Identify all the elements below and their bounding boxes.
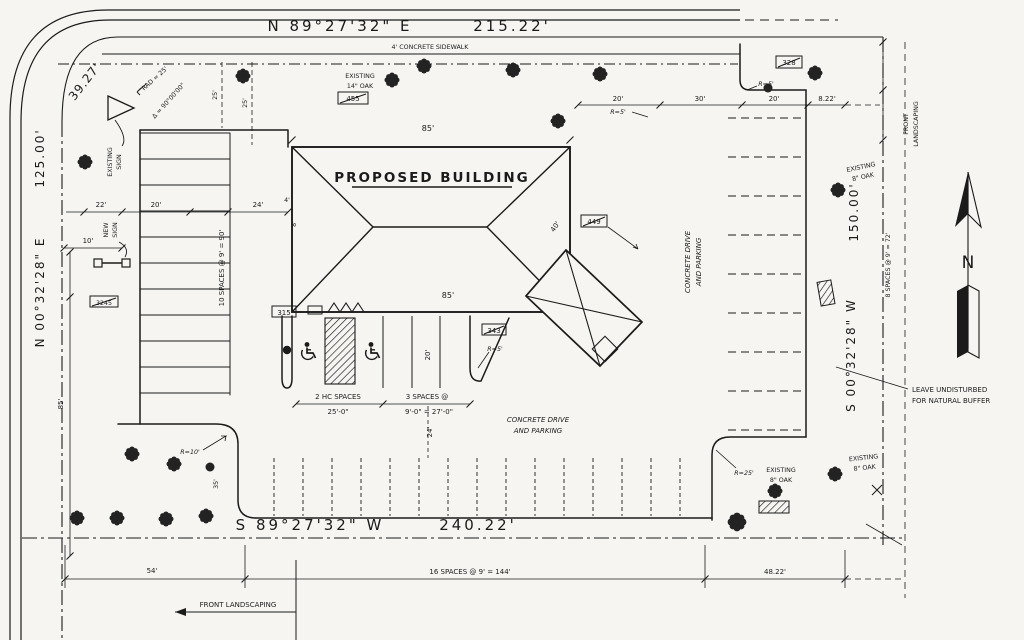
tree-icon [417, 59, 432, 74]
dim-20-stall: 20' [424, 350, 432, 361]
dim-20ne2: 20' [769, 95, 780, 103]
dim-4822: 48.22' [764, 568, 786, 576]
tree-icon [551, 114, 566, 129]
hatched-marker [817, 280, 835, 306]
east-distance-label: 150.00' [847, 182, 861, 241]
dim-24-aisle: 24' [426, 427, 434, 438]
property-boundary [22, 37, 905, 640]
tree-icon [506, 63, 521, 78]
tree-icon [167, 457, 182, 472]
parking-std-dim-label: 9'-0" = 27'-0" [405, 408, 453, 416]
dim-8: 8' [291, 221, 298, 227]
r10-leader [203, 436, 226, 450]
dim-20nw: 20' [151, 201, 162, 209]
compass-arrow-open [968, 172, 981, 227]
stall-lines-south [274, 458, 680, 516]
oak8-south2-label-1: EXISTING [849, 453, 879, 463]
survey-x-mark [872, 485, 882, 495]
site-plan-drawing: N 89°27'32" E 215.22' 4' CONCRETE SIDEWA… [0, 0, 1024, 640]
site-plan-sheet: N 89°27'32" E 215.22' 4' CONCRETE SIDEWA… [0, 0, 1024, 640]
tree-icon [236, 69, 251, 84]
tree-icon [385, 73, 400, 88]
existing-sign-label-2: SIGN [116, 154, 123, 170]
parking-east-label: 8 SPACES @ 9' = 72' [884, 232, 892, 297]
spot449-leader [608, 227, 638, 249]
tree-icon [78, 155, 93, 170]
oak8-south1-label-1: EXISTING [766, 467, 796, 474]
corner-delta-note: Δ = 90°00'00" [150, 81, 186, 120]
r5a-leader [632, 112, 648, 117]
parking-south-label: 16 SPACES @ 9' = 144' [429, 568, 510, 576]
north-distance-label: 215.22' [473, 17, 551, 35]
parking-left-label: 10 SPACES @ 9' = 90' [218, 230, 226, 307]
tree-icon [125, 447, 140, 462]
oak14-label-2: 14" OAK [347, 83, 374, 90]
compass-north-label: N [962, 253, 975, 273]
sidewalk [58, 54, 740, 64]
new-sign-label-2: SIGN [112, 222, 119, 238]
stall-lines-left [140, 133, 230, 393]
dim-22: 22' [96, 201, 107, 209]
front-landscaping-bottom-label: FRONT LANDSCAPING [200, 601, 277, 609]
dimensions [61, 39, 909, 640]
west-bearing-label: N 00°32'28" E [33, 237, 47, 348]
north-bearing-label: N 89°27'32" E [267, 17, 412, 35]
existing-sign-label-1: EXISTING [107, 147, 114, 177]
radius-r5c-label: R=5' [487, 346, 503, 353]
building-label: PROPOSED BUILDING [334, 170, 529, 186]
r25-leader [716, 450, 736, 468]
dim-30: 30' [695, 95, 706, 103]
existing-sign-symbol [108, 96, 134, 120]
dim-85-bottom: 85' [442, 291, 454, 300]
spot-328: 328 [782, 59, 795, 67]
parking-hc-dim-label: 25'-0" [327, 408, 348, 416]
hc-parking [283, 316, 440, 388]
radius-r5b-label: R=5' [758, 81, 774, 88]
hc-access-aisle-hatch [325, 318, 355, 384]
wall-zigzag [328, 303, 364, 312]
west-distance-label: 125.00' [33, 128, 47, 187]
dim-35: 35' [213, 479, 220, 489]
parking-std-count-label: 3 SPACES @ [406, 393, 449, 401]
drive-center-label-1: CONCRETE DRIVE [507, 416, 570, 424]
tree-icon [768, 484, 783, 499]
tree-icon [831, 183, 846, 198]
buffer-label-1: LEAVE UNDISTURBED [912, 386, 987, 394]
entry-vestibule [526, 250, 642, 366]
wheelchair-icon [302, 342, 316, 359]
dim-85-top: 85' [422, 124, 434, 133]
compass-tail-open [968, 285, 979, 358]
parking-south-stalls [274, 458, 680, 516]
road-edges [10, 10, 838, 640]
new-sign-post [94, 259, 102, 267]
curb-sw [118, 424, 256, 518]
front-landscaping-right-label-1: FRONT [903, 113, 910, 135]
fl-bottom-arrowhead [175, 608, 186, 616]
spot-449: 449 [587, 218, 600, 226]
radius-r10-label: R=10' [180, 449, 200, 456]
dim-40-roof: 40' [549, 220, 562, 234]
dim-20ne1: 20' [613, 95, 624, 103]
dim-54: 54' [147, 567, 158, 575]
tree-dot [206, 463, 215, 472]
hatched-marker [759, 501, 789, 513]
spot-elevation-boxes [90, 56, 835, 513]
spot-343: 343 [487, 327, 500, 335]
new-sign-post [122, 259, 130, 267]
oak8-south2-label-2: 8" OAK [853, 464, 877, 473]
spot-455: 455 [346, 95, 359, 103]
front-landscaping-right-label-2: LANDSCAPING [913, 101, 920, 147]
dim-25b: 25' [242, 98, 249, 108]
radius-r25-label: R=25' [734, 470, 754, 477]
wheelchair-icon [366, 342, 380, 359]
dim-822: 8.22' [818, 95, 836, 103]
oak8-east-label-2: 8" OAK [852, 171, 876, 183]
spot-3245: 3245 [96, 300, 112, 307]
dim-25a: 25' [212, 90, 219, 100]
radius-r5a-label: R=5' [610, 109, 626, 116]
tree-icon [70, 511, 85, 526]
south-distance-label: 240.22' [439, 516, 517, 534]
sidewalk-label: 4' CONCRETE SIDEWALK [392, 44, 470, 51]
dim-24nw: 24' [253, 201, 264, 209]
oak14-label-1: EXISTING [345, 73, 375, 80]
tree-icon [199, 509, 214, 524]
drive-east-label-2: AND PARKING [695, 237, 703, 287]
signs [94, 84, 146, 267]
tree-icon [110, 511, 125, 526]
dim-4: 4' [284, 197, 290, 204]
spot-315: 315 [277, 309, 290, 317]
south-bearing-label: S 89°27'32" W [236, 516, 385, 534]
parking-hc-count-label: 2 HC SPACES [315, 393, 361, 401]
dim-85-west: 85' [57, 399, 65, 410]
hc-island-shrub [283, 346, 291, 354]
compass-arrow-filled [955, 172, 968, 227]
tree-icon [159, 512, 174, 527]
parking-east-stalls [728, 118, 806, 430]
corner-tie-line [866, 524, 902, 545]
corner-rad-note: RAD = 25' [141, 65, 170, 92]
east-bearing-label: S 00°32'28" W [844, 298, 858, 412]
parking-left-stalls [140, 133, 230, 393]
annotations: N 89°27'32" E 215.22' 4' CONCRETE SIDEWA… [33, 17, 990, 609]
tree-icon [593, 67, 608, 82]
stall-lines-east [728, 118, 806, 430]
drive-center-label-2: AND PARKING [513, 427, 563, 435]
dim-ext-south [65, 545, 845, 588]
tree-icon [808, 66, 823, 81]
drive-east-label-1: CONCRETE DRIVE [684, 230, 692, 293]
existing-sign-leader [115, 120, 124, 146]
dim-10ft: 10' [83, 237, 94, 245]
tree-icon [828, 467, 843, 482]
oak8-south1-label-2: 8" OAK [770, 477, 793, 484]
compass-tail-filled [957, 285, 968, 358]
buffer-label-2: FOR NATURAL BUFFER [912, 397, 990, 405]
new-sign-label-1: NEW [103, 222, 110, 238]
tree-icon [728, 513, 747, 532]
fl-bottom-arrow-line [175, 560, 296, 640]
